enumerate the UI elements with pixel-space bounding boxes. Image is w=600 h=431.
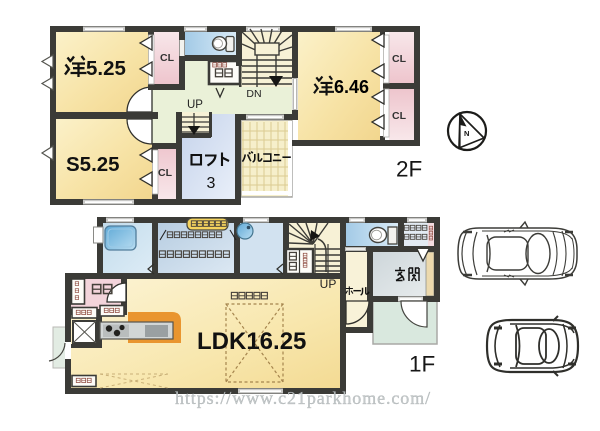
svg-text:CL: CL [392,110,407,122]
svg-text:https://www.c21parkhome.com/: https://www.c21parkhome.com/ [175,388,431,408]
svg-text:UP: UP [187,99,203,111]
svg-text:UP: UP [320,277,337,291]
svg-text:3: 3 [207,175,216,192]
svg-text:DN: DN [246,88,261,100]
svg-text:CL: CL [392,53,407,65]
svg-text:CL: CL [158,167,173,179]
svg-text:CL: CL [160,52,175,64]
svg-text:2F: 2F [396,157,422,182]
svg-text:5.25: 5.25 [86,57,126,80]
svg-text:N: N [464,129,469,138]
svg-text:1F: 1F [409,352,435,377]
svg-text:6.46: 6.46 [334,77,369,97]
svg-text:LDK16.25: LDK16.25 [197,328,306,355]
svg-text:S5.25: S5.25 [66,153,120,176]
